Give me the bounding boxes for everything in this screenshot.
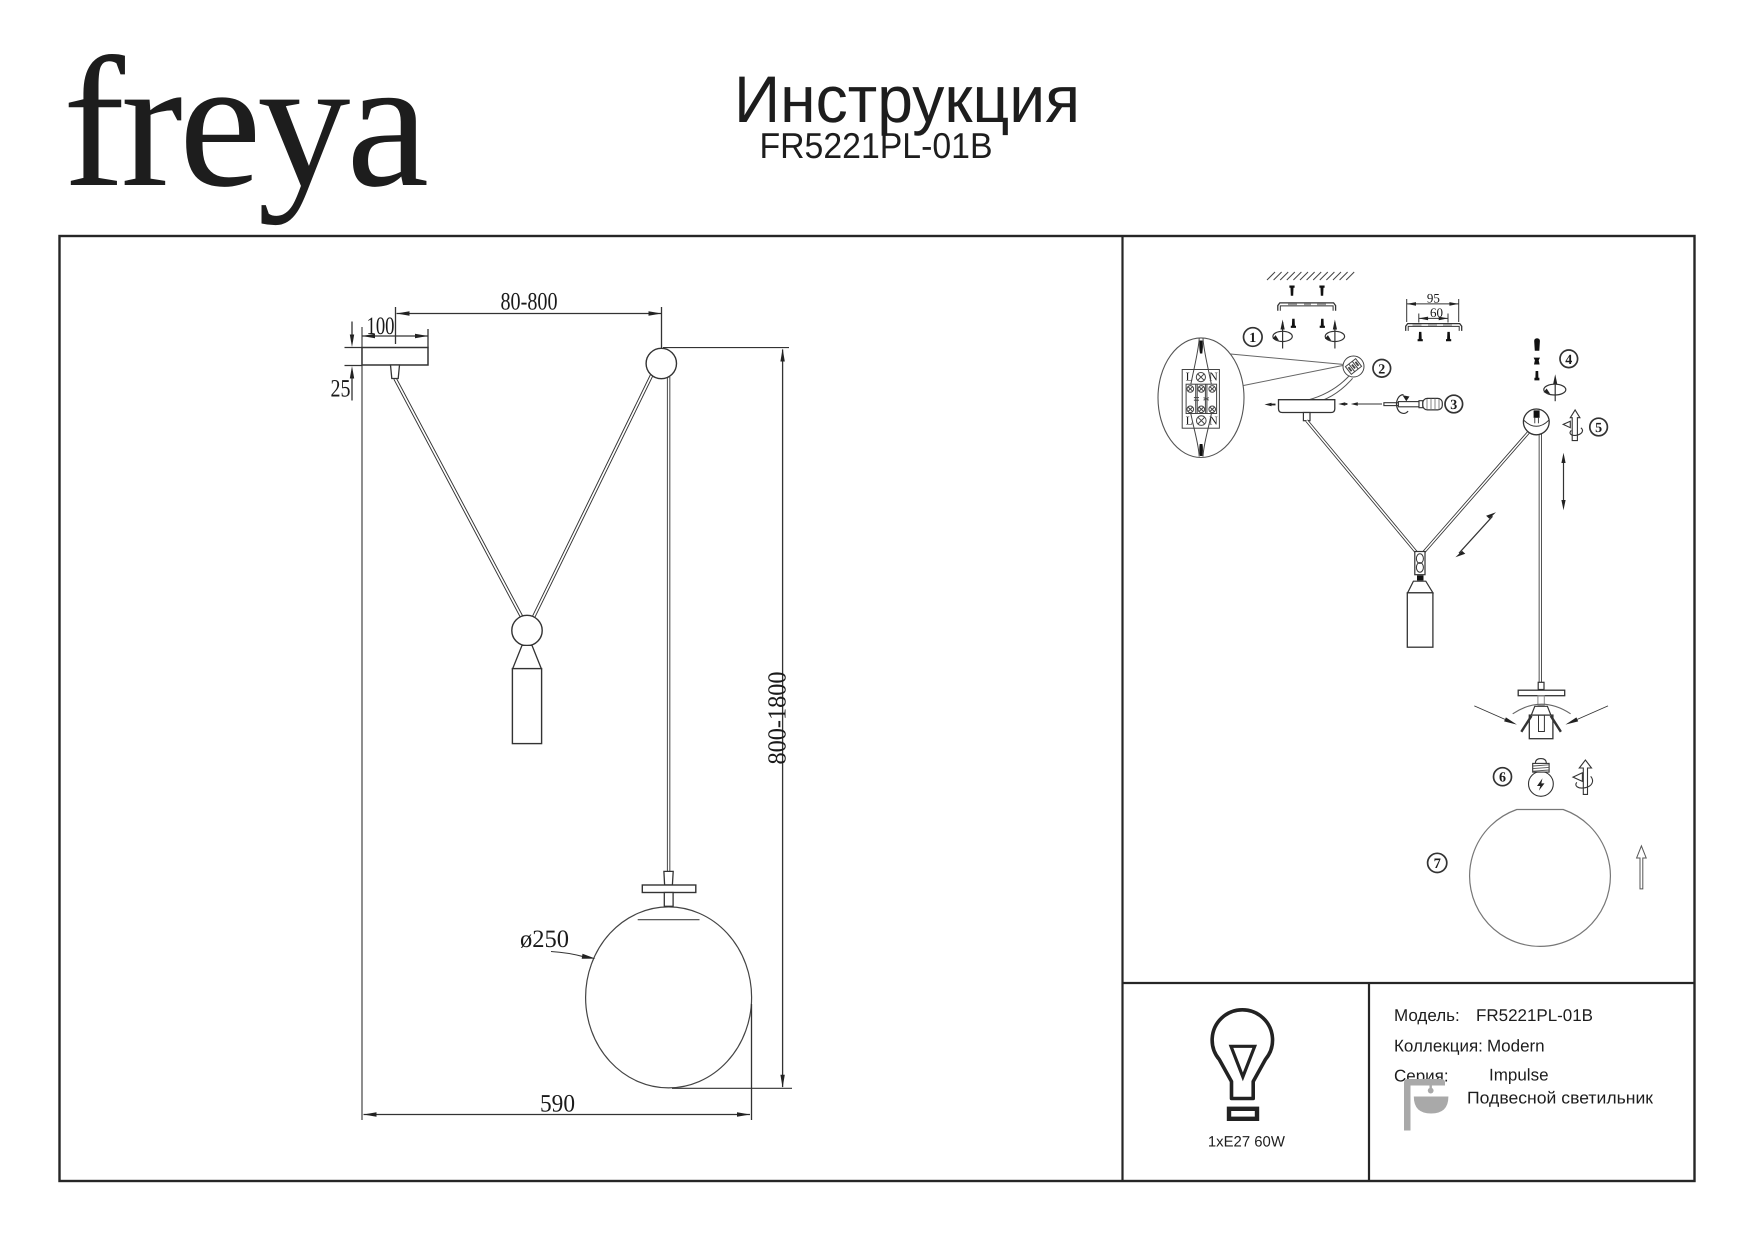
svg-text:80-800: 80-800 (501, 289, 558, 316)
svg-text:Подвесной светильник: Подвесной светильник (1467, 1089, 1654, 1108)
svg-text:800-1800: 800-1800 (763, 672, 792, 765)
svg-text:FR5221PL-01B: FR5221PL-01B (1476, 1006, 1593, 1025)
svg-text:Modern: Modern (1487, 1037, 1545, 1056)
svg-text:60: 60 (1430, 305, 1443, 320)
svg-text:Модель:: Модель: (1394, 1006, 1460, 1025)
svg-text:1xE27 60W: 1xE27 60W (1208, 1134, 1286, 1151)
svg-text:25: 25 (331, 376, 351, 403)
svg-text:590: 590 (540, 1091, 575, 1118)
svg-text:5: 5 (1595, 421, 1602, 436)
svg-text:Impulse: Impulse (1489, 1066, 1549, 1085)
svg-text:N: N (1209, 414, 1218, 428)
svg-text:Коллекция:: Коллекция: (1394, 1037, 1483, 1056)
svg-text:freya: freya (63, 20, 427, 226)
svg-text:95: 95 (1427, 291, 1440, 306)
svg-text:2: 2 (1378, 362, 1385, 377)
svg-text:ø250: ø250 (520, 926, 569, 953)
svg-text:3: 3 (1450, 398, 1457, 413)
svg-text:4: 4 (1565, 353, 1572, 368)
svg-text:6: 6 (1499, 771, 1506, 786)
svg-text:100: 100 (367, 313, 395, 340)
svg-text:1: 1 (1249, 331, 1256, 346)
svg-text:FR5221PL-01B: FR5221PL-01B (760, 125, 993, 166)
svg-text:7: 7 (1434, 856, 1441, 872)
